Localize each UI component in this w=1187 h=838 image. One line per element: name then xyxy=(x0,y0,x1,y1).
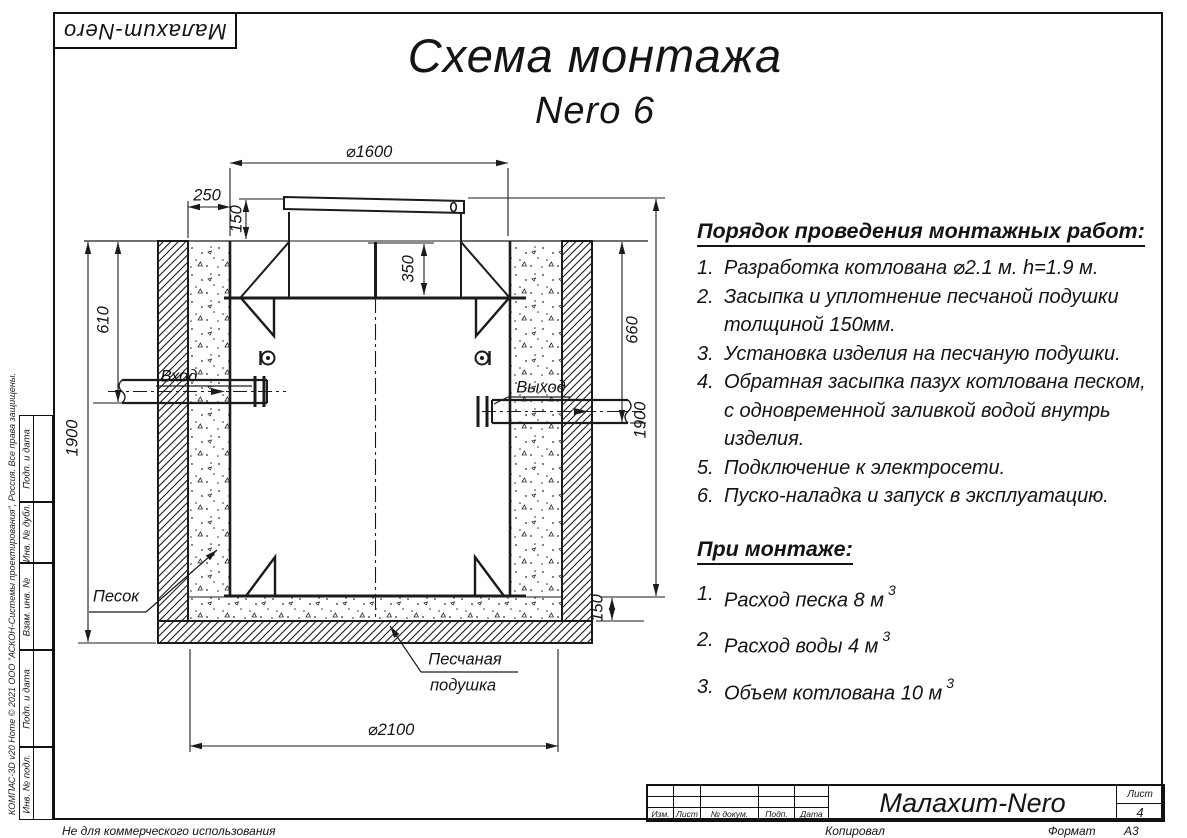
instructions-panel: Порядок проведения монтажных работ: 1. Р… xyxy=(697,219,1171,719)
drawing-sheet: Малахит-Nero Подп. и дата Инв. № дубл. В… xyxy=(0,0,1187,838)
step-number: 2. xyxy=(697,283,724,340)
format-label: Формат xyxy=(1048,824,1096,838)
step-text: Засыпка и уплотнение песчаной подушки то… xyxy=(724,283,1119,340)
step-text: Пуско-наладка и запуск в эксплуатацию. xyxy=(724,482,1109,511)
dim-cushion-thickness: 150 xyxy=(589,594,608,622)
montage-text: Расход воды 4 м3 xyxy=(724,626,886,662)
label-cushion-line1: Песчаная xyxy=(428,651,501,670)
install-heading: Порядок проведения монтажных работ: xyxy=(697,219,1145,247)
step-number: 4. xyxy=(697,368,724,454)
dim-inlet-depth: 610 xyxy=(95,306,114,334)
sheet-number: 4 xyxy=(1117,804,1163,820)
dim-outlet-depth: 660 xyxy=(624,316,643,344)
tb-col-izm: Изм. xyxy=(648,808,674,820)
label-inlet: Вход xyxy=(161,368,198,387)
montage-heading: При монтаже: xyxy=(697,537,853,565)
tb-col-podp: Подп. xyxy=(759,808,795,820)
step-number: 3. xyxy=(697,340,724,369)
install-step: 1. Разработка котлована ⌀2.1 м. h=1.9 м. xyxy=(697,254,1171,283)
label-cushion-line2: подушка xyxy=(430,677,496,696)
label-outlet: Выход xyxy=(516,379,566,398)
tb-col-list: Лист xyxy=(674,808,701,820)
montage-text: Расход песка 8 м3 xyxy=(724,580,892,616)
dim-side-gap: 250 xyxy=(193,187,221,206)
montage-item: 2. Расход воды 4 м3 xyxy=(697,626,1171,662)
dim-neck-depth: 350 xyxy=(400,255,419,283)
step-text: Обратная засыпка пазух котлована песком,… xyxy=(724,368,1146,454)
dim-pit-diameter: ⌀2100 xyxy=(368,720,415,740)
montage-item: 1. Расход песка 8 м3 xyxy=(697,580,1171,616)
title-block-company: Малахит-Nero xyxy=(829,786,1116,820)
step-text: Установка изделия на песчаную подушки. xyxy=(724,340,1121,369)
step-number: 6. xyxy=(697,482,724,511)
montage-text: Объем котлована 10 м3 xyxy=(724,673,950,709)
step-text: Разработка котлована ⌀2.1 м. h=1.9 м. xyxy=(724,254,1098,283)
format-value: А3 xyxy=(1124,824,1139,838)
title-block-sheet: Лист 4 xyxy=(1116,786,1163,820)
montage-item: 3. Объем котлована 10 м3 xyxy=(697,673,1171,709)
install-step: 4. Обратная засыпка пазух котлована песк… xyxy=(697,368,1171,454)
tb-col-ndokum: № докум. xyxy=(701,808,759,820)
tb-col-data: Дата xyxy=(795,808,829,820)
step-number: 1. xyxy=(697,254,724,283)
install-step: 6. Пуско-наладка и запуск в эксплуатацию… xyxy=(697,482,1171,511)
install-step: 3. Установка изделия на песчаную подушки… xyxy=(697,340,1171,369)
step-number: 5. xyxy=(697,454,724,483)
install-step: 5. Подключение к электросети. xyxy=(697,454,1171,483)
step-text: Подключение к электросети. xyxy=(724,454,1005,483)
dim-tank-diameter: ⌀1600 xyxy=(346,142,393,162)
sheet-label: Лист xyxy=(1117,786,1163,804)
label-sand: Песок xyxy=(93,588,139,607)
copied-label: Копировал xyxy=(800,824,910,838)
title-block: Изм. Лист № докум. Подп. Дата Малахит-Ne… xyxy=(646,784,1165,822)
not-for-commercial-note: Не для коммерческого использования xyxy=(62,824,276,838)
install-step: 2. Засыпка и уплотнение песчаной подушки… xyxy=(697,283,1171,340)
dim-lid-height: 150 xyxy=(228,205,247,233)
dim-pit-depth-left: 1900 xyxy=(64,420,83,457)
dim-pit-depth-right: 1900 xyxy=(632,402,651,439)
title-block-grid: Изм. Лист № докум. Подп. Дата xyxy=(648,786,829,820)
